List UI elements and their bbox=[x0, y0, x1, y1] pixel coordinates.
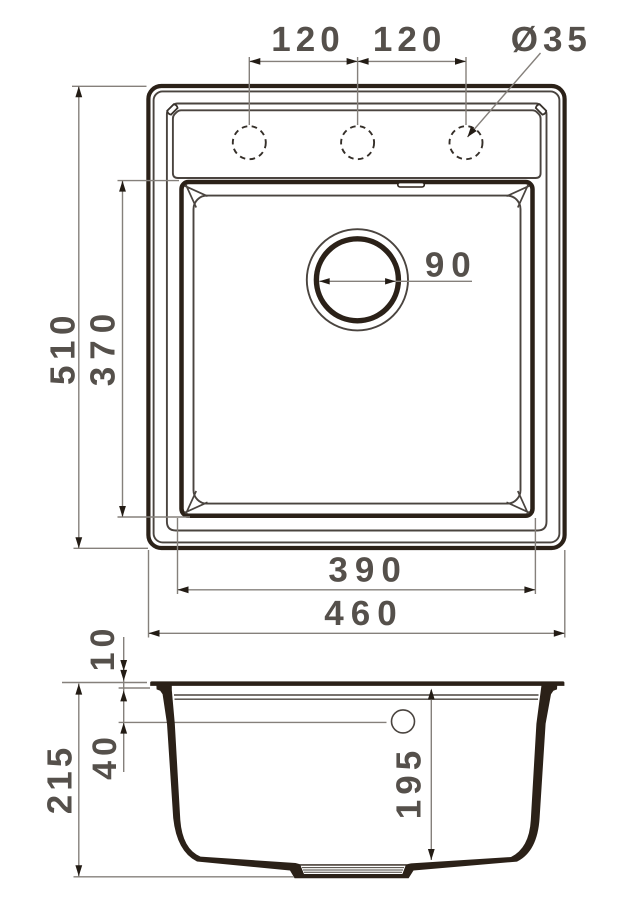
svg-text:120: 120 bbox=[373, 20, 446, 59]
svg-text:460: 460 bbox=[324, 594, 403, 633]
svg-text:195: 195 bbox=[390, 746, 429, 819]
svg-text:120: 120 bbox=[271, 20, 344, 59]
svg-text:510: 510 bbox=[44, 310, 83, 385]
svg-text:370: 370 bbox=[84, 307, 123, 386]
svg-text:40: 40 bbox=[86, 732, 124, 780]
svg-text:215: 215 bbox=[41, 744, 80, 814]
svg-text:10: 10 bbox=[84, 624, 122, 672]
svg-text:90: 90 bbox=[425, 246, 478, 285]
svg-text:390: 390 bbox=[328, 551, 407, 590]
svg-text:Ø35: Ø35 bbox=[511, 20, 592, 59]
